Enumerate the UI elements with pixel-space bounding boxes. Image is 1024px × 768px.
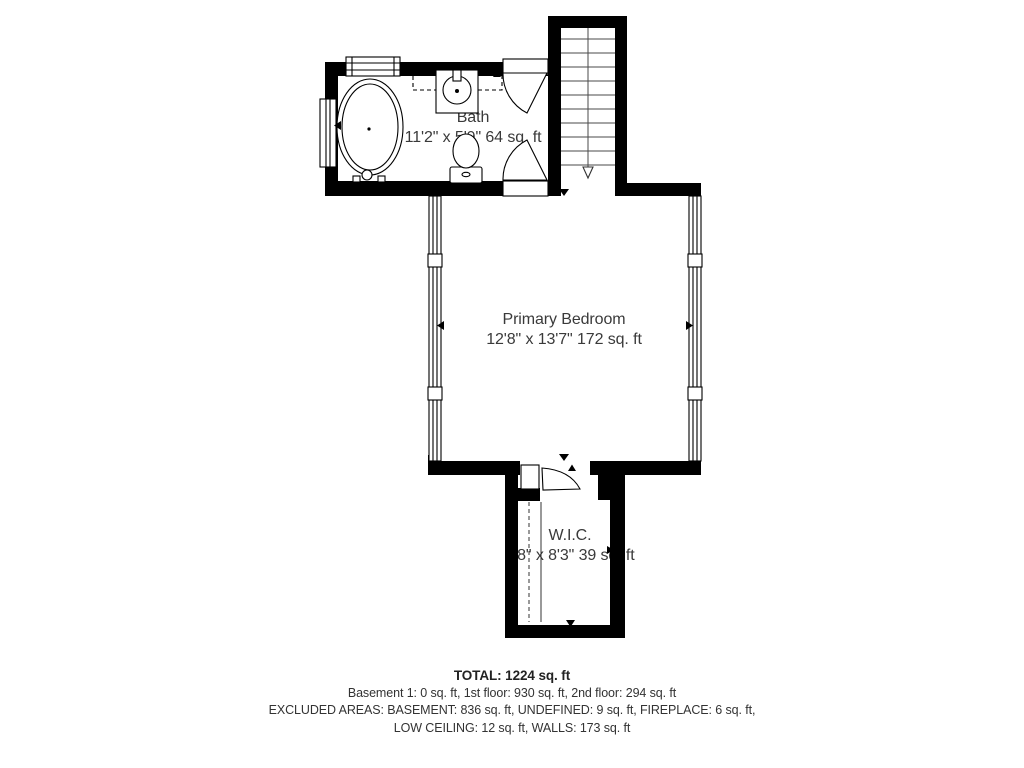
excluded-areas-line1: EXCLUDED AREAS: BASEMENT: 836 sq. ft, UN… bbox=[269, 702, 756, 720]
door-bath-bedroom bbox=[503, 140, 548, 196]
floor-plan-drawing bbox=[0, 0, 1024, 768]
door-bath-top bbox=[503, 59, 548, 113]
toilet-icon bbox=[450, 134, 482, 183]
staircase bbox=[561, 28, 615, 178]
window-bath-left bbox=[320, 99, 336, 167]
area-summary: TOTAL: 1224 sq. ft Basement 1: 0 sq. ft,… bbox=[269, 667, 756, 737]
down-arrow-icon bbox=[583, 167, 593, 178]
window-bedroom-left bbox=[428, 196, 442, 461]
floor-areas: Basement 1: 0 sq. ft, 1st floor: 930 sq.… bbox=[269, 685, 756, 703]
sink-icon bbox=[413, 70, 502, 113]
excluded-areas-line2: LOW CEILING: 12 sq. ft, WALLS: 173 sq. f… bbox=[269, 720, 756, 738]
window-bedroom-right bbox=[688, 196, 702, 461]
marker-bedroom-bottom-out bbox=[559, 454, 569, 461]
bathtub-icon bbox=[337, 79, 403, 182]
closet-rod bbox=[529, 502, 541, 622]
total-area: TOTAL: 1224 sq. ft bbox=[269, 667, 756, 685]
doors bbox=[503, 59, 580, 490]
marker-bedroom-bottom-in bbox=[568, 465, 576, 472]
floor-plan-page: Bath 11'2" x 5'9" 64 sq. ft Primary Bedr… bbox=[0, 0, 1024, 768]
window-bath-top bbox=[346, 57, 400, 76]
